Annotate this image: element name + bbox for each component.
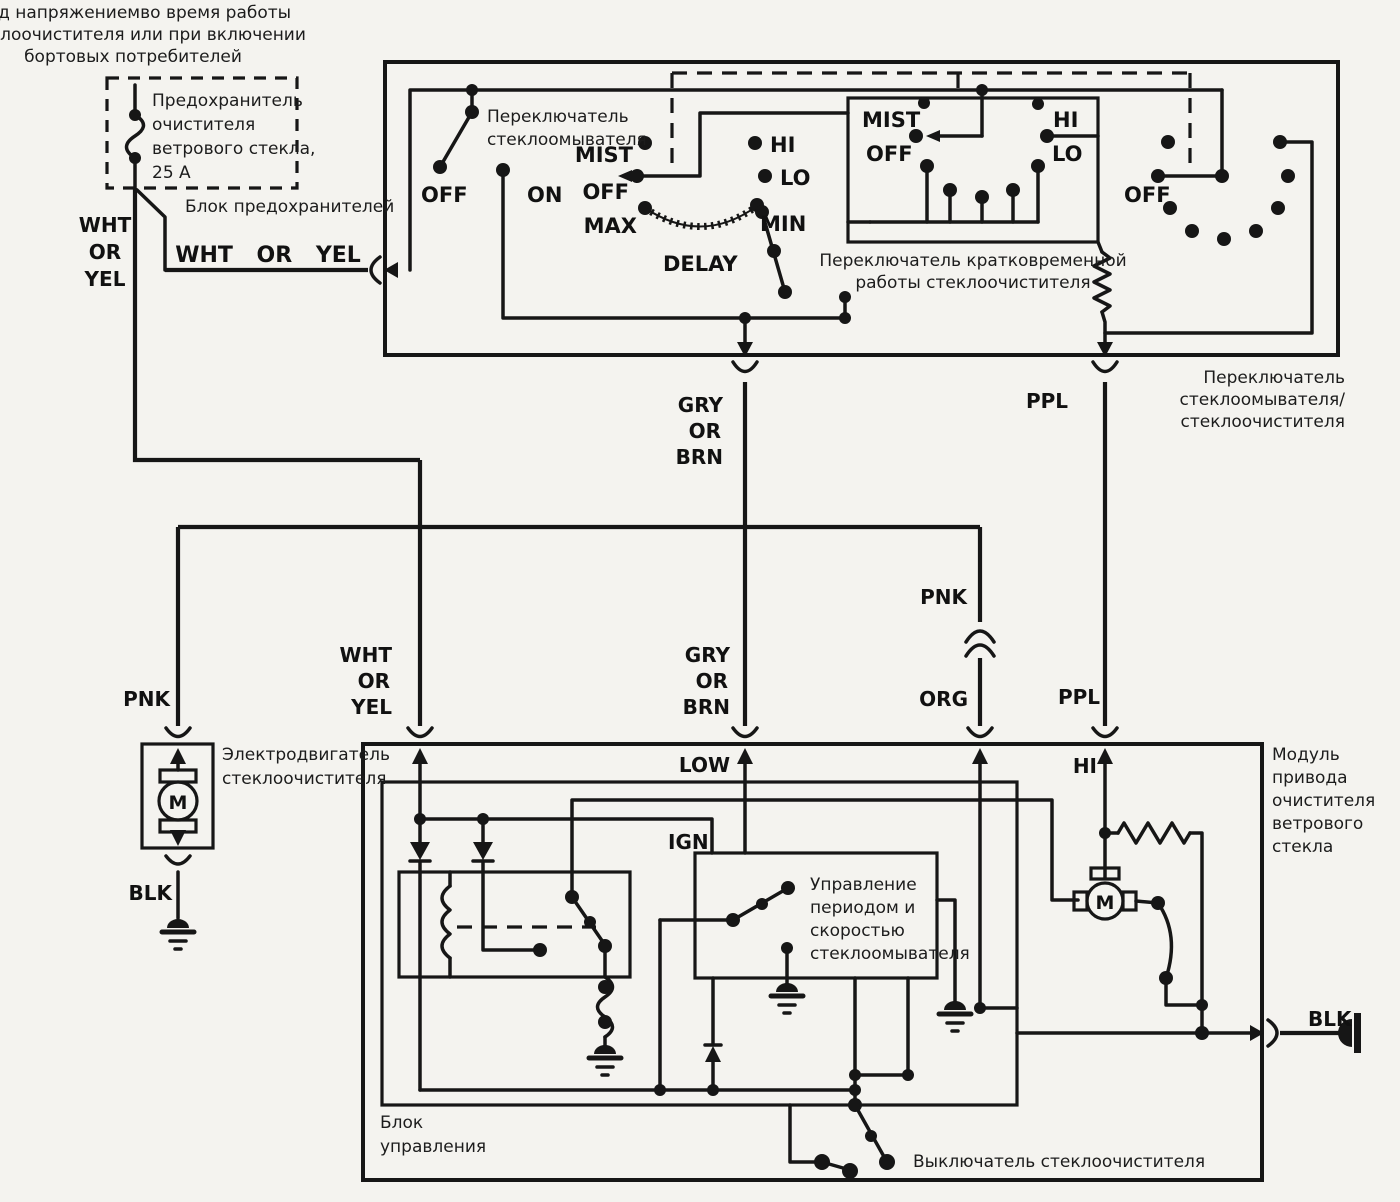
wire-label-whtoryel-h: WHT OR YEL (175, 243, 361, 268)
wire-label-whtoryel-v1: WHT (79, 213, 132, 237)
wire-low: LOW (679, 753, 730, 777)
mist-switch-label-2: работы стеклоочистителя (855, 273, 1090, 293)
wire-label-whtoryel-v3: YEL (84, 267, 126, 291)
module-motor-symbol (1074, 764, 1209, 1040)
wire-gry1-3: BRN (676, 445, 723, 469)
ppl-exit-connector (1093, 342, 1117, 726)
note-line-1: Под напряжениемво время работы (0, 3, 291, 23)
wire-gry2-3: BRN (683, 695, 730, 719)
pos-hi-box: HI (1053, 108, 1078, 132)
washer-ctrl-label-4: стеклоомывателя (810, 944, 970, 964)
pos-lo-rotary: LO (780, 166, 811, 190)
wiring-diagram: Под напряжениемво время работы стеклоочи… (0, 0, 1400, 1202)
wire-org: ORG (919, 687, 968, 711)
wire-gry1-2: OR (689, 419, 721, 443)
pos-lo-box: LO (1052, 142, 1083, 166)
module-label-2: привода (1272, 768, 1348, 788)
wire-gry2-1: GRY (685, 643, 731, 667)
pos-off-box: OFF (866, 142, 913, 166)
washer-ctrl-ground (771, 983, 803, 1013)
mist-switch-label-1: Переключатель кратковременной (819, 251, 1126, 271)
pos-max: MAX (584, 214, 637, 238)
wiper-motor-label-1: Электродвигатель (222, 745, 390, 765)
wire-hi: HI (1073, 754, 1097, 778)
right-ground (939, 1001, 971, 1031)
wire-blk-left: BLK (129, 881, 174, 905)
wiper-switch-label: Выключатель стеклоочистителя (913, 1152, 1205, 1172)
wire-pnk-right: PNK (920, 585, 968, 609)
combo-switch-label-2: стеклоомывателя/ (1179, 390, 1345, 410)
combo-switch-box (385, 62, 1338, 355)
module-label-4: ветрового (1272, 814, 1363, 834)
module-internals (410, 764, 1078, 1105)
combo-switch-label-1: Переключатель (1203, 368, 1345, 388)
wire-ign: IGN (668, 830, 709, 854)
pos-on-washer: ON (527, 183, 562, 207)
wire-label-whtoryel-v2: OR (89, 240, 121, 264)
left-ground (162, 919, 194, 949)
mid-bus-wiring (178, 527, 994, 726)
motor-letter-right: M (1096, 892, 1115, 914)
wire-whtyel2-1: WHT (340, 643, 393, 667)
fuse-label-4: 25 А (152, 163, 191, 183)
module-label-3: очистителя (1272, 791, 1375, 811)
note-line-2: стеклоочистителя или при включении (0, 25, 306, 45)
wire-blk-right: BLK (1308, 1007, 1353, 1031)
pos-min: MIN (760, 212, 806, 236)
control-box-label-2: управления (380, 1137, 486, 1157)
washer-switch-label-1: Переключатель (487, 107, 629, 127)
pos-mist-box: MIST (862, 108, 921, 132)
fuse-label-1: Предохранитель (152, 91, 303, 111)
relay-ground (589, 1045, 621, 1075)
combo-switch-label-3: стеклоочистителя (1181, 412, 1346, 432)
control-box-label-1: Блок (380, 1113, 423, 1133)
wiper-motor-label-2: стеклоочистителя (222, 769, 387, 789)
washer-ctrl-label-1: Управление (810, 875, 917, 895)
pos-mist-rotary: MIST (575, 143, 634, 167)
fuse-symbol (127, 85, 144, 188)
pos-hi-rotary: HI (770, 133, 795, 157)
wire-gry2-2: OR (696, 669, 728, 693)
pos-off-wiper-rotary: OFF (1124, 183, 1171, 207)
pos-off-washer: OFF (421, 183, 468, 207)
pos-off-rotary: OFF (582, 180, 629, 204)
fuse-label-2: очистителя (152, 115, 255, 135)
wiring-diagram-page: Под напряжениемво время работы стеклоочи… (0, 0, 1400, 1202)
module-label-1: Модуль (1272, 745, 1340, 765)
note-line-3: бортовых потребителей (24, 47, 242, 67)
delay-resistor (1094, 135, 1312, 346)
wire-pnk-left: PNK (123, 687, 171, 711)
washer-ctrl-label-3: скоростью (810, 921, 905, 941)
wire-whtyel2-2: OR (358, 669, 390, 693)
gry-exit-connector (733, 342, 757, 726)
wire-ppl1: PPL (1026, 389, 1068, 413)
motor-letter-left: M (169, 792, 188, 814)
wire-whtyel2-3: YEL (350, 695, 392, 719)
fuse-label-3: ветрового стекла, (152, 139, 315, 159)
wire-ppl2: PPL (1058, 685, 1100, 709)
washer-ctrl-label-2: периодом и (810, 898, 915, 918)
module-label-5: стекла (1272, 837, 1333, 857)
wiper-onoff-switch (790, 1098, 895, 1179)
pos-delay: DELAY (663, 252, 738, 276)
wire-gry1-1: GRY (678, 393, 724, 417)
fuse-box-label: Блок предохранителей (185, 197, 394, 217)
